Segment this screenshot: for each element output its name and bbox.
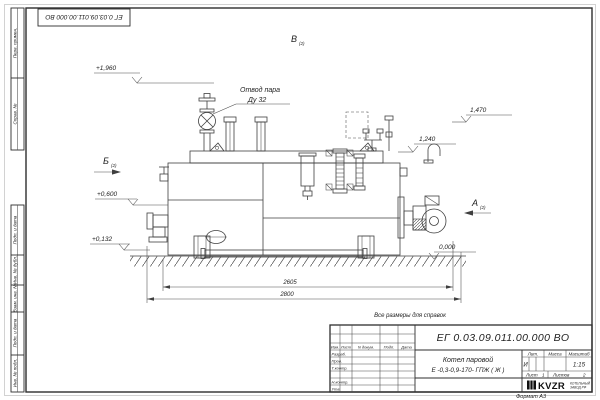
row-nkontr: Н.контр. (332, 380, 349, 385)
col-izm: Изм. (331, 345, 340, 350)
product-name-line2: Е -0,3-0,9-170- ГПЖ ( Ж ) (431, 367, 504, 374)
sheet-label: Лист (525, 373, 538, 378)
row-utv: Утв. (332, 387, 341, 392)
svg-text:0,000: 0,000 (439, 244, 456, 251)
scale-value: 1:15 (573, 362, 586, 369)
margin-label-vzam-inv: Взам. инв. № (12, 284, 17, 312)
svg-text:(2): (2) (111, 163, 117, 168)
product-name-line1: Котел паровой (443, 356, 493, 364)
lit-label: Лит. (527, 352, 539, 357)
svg-text:1,470: 1,470 (470, 107, 487, 114)
col-podp: Подп. (384, 345, 395, 350)
mass-label: Масса (548, 352, 562, 357)
svg-text:Ду 32: Ду 32 (247, 97, 266, 104)
ground-hatch (130, 256, 466, 267)
lit-value: И (523, 363, 528, 369)
svg-text:+0,132: +0,132 (92, 236, 112, 243)
sheets-label: Листов (552, 373, 570, 378)
drawing-sheet: ЕГ 0.03.09.011.00.000 ВО Перв. примен. С… (0, 0, 600, 400)
svg-text:В: В (291, 34, 297, 44)
col-data: Дата (400, 345, 412, 350)
col-ndok: N докум. (358, 345, 374, 350)
logo-sub-2: ЗАВОД РФ (570, 386, 587, 390)
drawing-canvas: ЕГ 0.03.09.011.00.000 ВО Перв. примен. С… (0, 0, 600, 400)
margin-label-inv-podl: Инв. № подл. (12, 359, 17, 388)
margin-label-inv-dubl: Инв. № дубл. (12, 256, 17, 284)
col-list: Лист (340, 345, 352, 350)
svg-text:1,240: 1,240 (419, 136, 436, 143)
titleblock-doc-number: ЕГ 0.03.09.011.00.000 ВО (437, 332, 570, 344)
dim-2800-label: 2800 (279, 292, 294, 298)
row-prov: Пров. (332, 359, 343, 364)
logo-text: KVZR (538, 381, 565, 392)
svg-text:(2): (2) (480, 205, 486, 210)
row-tkontr: Т.контр. (332, 366, 348, 371)
svg-text:+0,600: +0,600 (97, 191, 117, 198)
reference-note: Все размеры для справок (374, 313, 447, 319)
format-note: Формат А3 (516, 394, 547, 400)
svg-text:+1,960: +1,960 (96, 65, 116, 72)
svg-text:А: А (471, 198, 478, 208)
sheets-value: 2 (582, 373, 586, 378)
margin-label-sprav-n: Справ. № (12, 104, 17, 125)
dim-2605-label: 2605 (282, 280, 297, 286)
svg-text:(2): (2) (299, 41, 305, 46)
margin-label-perv-primen: Перв. примен. (12, 28, 17, 59)
margin-label-podp-data-1: Подп. и дата (12, 215, 17, 244)
svg-text:Отвод пара: Отвод пара (240, 86, 280, 94)
stamp-doc-number: ЕГ 0.03.09.011.00.000 ВО (45, 13, 122, 20)
svg-text:Б: Б (103, 156, 109, 166)
row-razrab: Разраб. (332, 352, 346, 357)
scale-label: Масштаб (568, 352, 589, 357)
margin-label-podp-data-2: Подп. и дата (12, 318, 17, 347)
